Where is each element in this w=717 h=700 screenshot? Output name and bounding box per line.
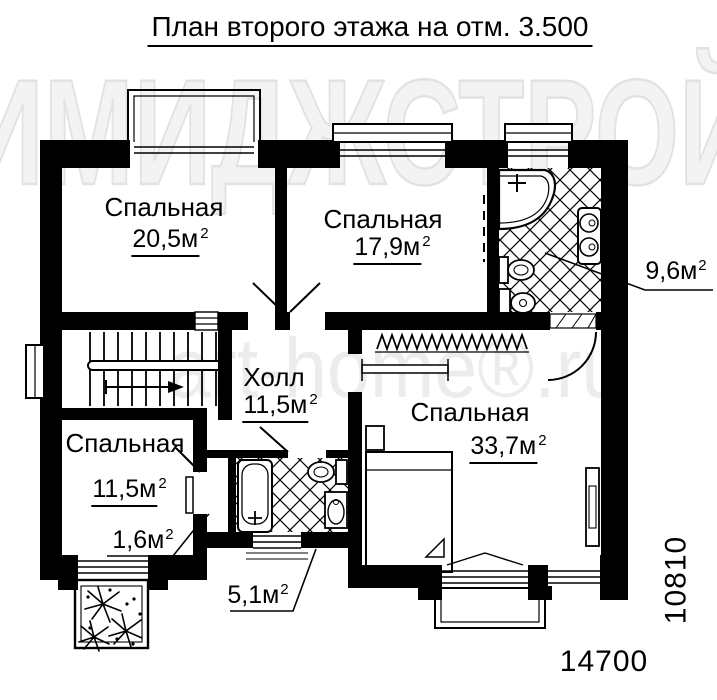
area-label-bathroom-top: 9,6м2 xyxy=(645,258,706,285)
wash-sink xyxy=(325,492,347,528)
floor-plan-drawing xyxy=(0,0,717,700)
bathtub xyxy=(238,460,272,532)
planter xyxy=(75,580,148,651)
area-label-bathroom-bottom: 5,1м2 xyxy=(227,582,288,609)
area-label-bedroom-bottom-right: 33,7м2 xyxy=(469,433,546,464)
area-label-hall: 11,5м2 xyxy=(242,392,317,423)
area-label-bedroom-top-left: 20,5м2 xyxy=(131,226,208,257)
door-leaf-open xyxy=(362,359,448,381)
room-label-bedroom-top-left: Спальная xyxy=(105,194,224,221)
page-title-text: План второго этажа на отм. 3.500 xyxy=(147,12,592,47)
room-label-hall: Холл xyxy=(243,364,304,391)
tv-cabinet xyxy=(586,468,599,546)
floor-plan-page: ИМИДЖСТРОЙ art-home®.ru xyxy=(0,0,717,700)
bed xyxy=(366,426,452,572)
double-sink xyxy=(578,208,601,264)
toilet-2 xyxy=(308,460,347,484)
room-label-bedroom-top-middle: Спальная xyxy=(324,206,443,233)
dimension-width: 14700 xyxy=(560,646,648,678)
page-title: План второго этажа на отм. 3.500 xyxy=(147,12,592,47)
staircase xyxy=(88,332,230,406)
room-label-bedroom-bottom-left: Спальная xyxy=(66,430,185,457)
room-label-bedroom-bottom-right: Спальная xyxy=(411,399,530,426)
area-label-closet: 1,6м2 xyxy=(112,527,173,554)
area-label-bedroom-top-middle: 17,9м2 xyxy=(353,234,430,265)
area-label-bedroom-bottom-left: 11,5м2 xyxy=(91,476,166,507)
terrace-outline xyxy=(128,90,260,153)
dimension-height: 10810 xyxy=(660,536,692,624)
wardrobe xyxy=(375,335,529,352)
